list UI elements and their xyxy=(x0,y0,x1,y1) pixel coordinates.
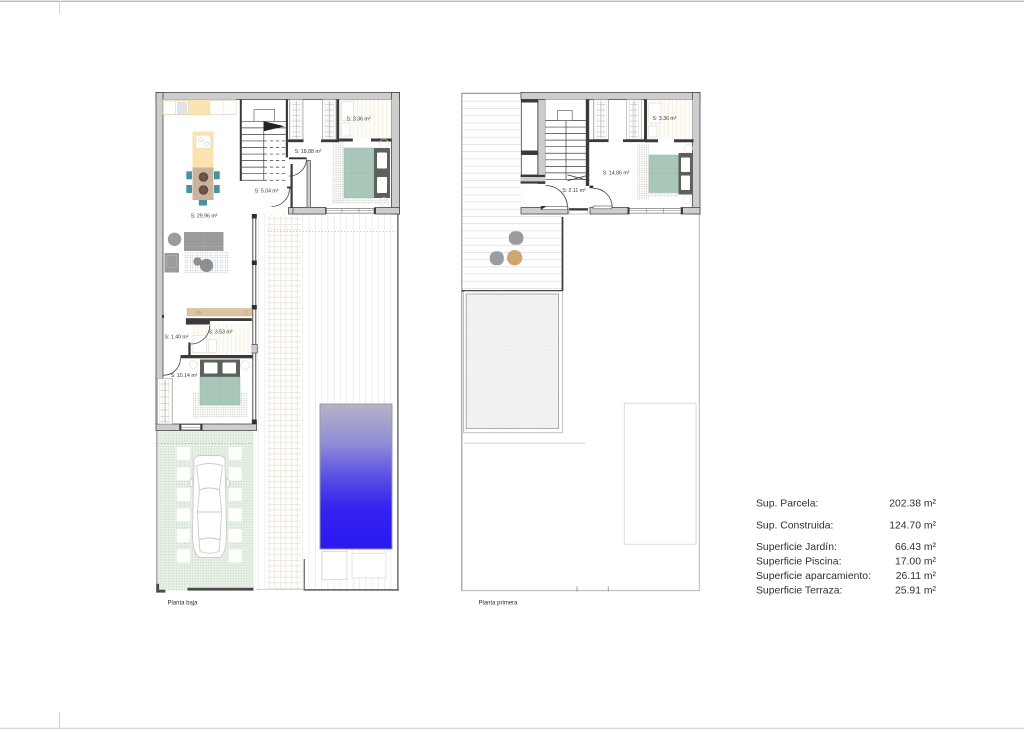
svg-text:25.91 m²: 25.91 m² xyxy=(895,586,937,597)
svg-text:S: 5.04 m²: S: 5.04 m² xyxy=(255,189,279,195)
svg-text:S: 29.96 m²: S: 29.96 m² xyxy=(191,214,218,220)
svg-text:S: 1.40 m²: S: 1.40 m² xyxy=(165,334,189,340)
svg-text:S: 10.14 m²: S: 10.14 m² xyxy=(171,373,198,379)
svg-text:26.11 m²: 26.11 m² xyxy=(896,571,937,582)
svg-text:17.00 m²: 17.00 m² xyxy=(895,557,937,568)
svg-text:Superficie Piscina:: Superficie Piscina: xyxy=(756,557,841,568)
svg-text:Superficie aparcamiento:: Superficie aparcamiento: xyxy=(756,571,871,582)
svg-text:S: 3.53 m²: S: 3.53 m² xyxy=(209,330,233,336)
svg-text:S: 2.11 m²: S: 2.11 m² xyxy=(562,188,586,194)
svg-text:202.38 m²: 202.38 m² xyxy=(889,499,936,510)
svg-text:Planta baja: Planta baja xyxy=(168,601,199,607)
svg-text:Sup. Construida:: Sup. Construida: xyxy=(756,521,833,532)
svg-text:Superficie Terraza:: Superficie Terraza: xyxy=(756,586,842,597)
svg-text:TV: TV xyxy=(196,311,202,316)
svg-text:Superficie Jardín:: Superficie Jardín: xyxy=(756,542,837,553)
svg-text:S: 3.36 m²: S: 3.36 m² xyxy=(347,116,371,122)
svg-text:S: 18.88 m²: S: 18.88 m² xyxy=(295,149,322,155)
svg-text:Planta primera: Planta primera xyxy=(479,601,519,607)
svg-text:S: 3.36 m²: S: 3.36 m² xyxy=(653,116,677,122)
svg-text:S: 14.86 m²: S: 14.86 m² xyxy=(603,171,630,177)
svg-text:124.70 m²: 124.70 m² xyxy=(889,521,936,532)
svg-text:66.43 m²: 66.43 m² xyxy=(895,542,937,553)
svg-text:Sup. Parcela:: Sup. Parcela: xyxy=(756,499,818,510)
